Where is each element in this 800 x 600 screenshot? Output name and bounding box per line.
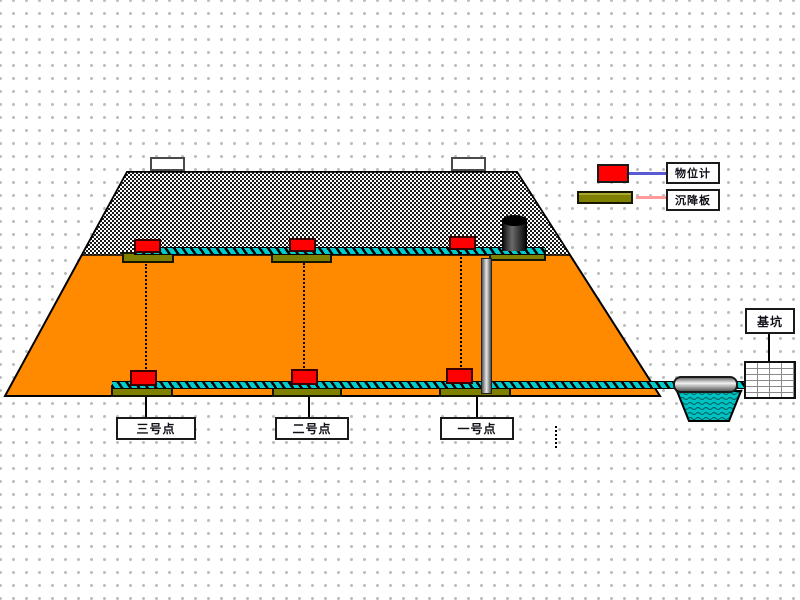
plumb-line-3 — [145, 264, 147, 369]
crest-marker-right — [451, 157, 486, 171]
label-stem-3 — [145, 397, 147, 418]
lower-rope — [112, 381, 746, 389]
hmi-canvas: 三号点 二号点 一号点 基坑 物位计 沉降板 — [0, 0, 800, 600]
level-gauge-lower-3 — [130, 370, 157, 386]
label-stem-2 — [308, 397, 310, 418]
level-gauge-swatch — [597, 164, 629, 183]
water-basin — [677, 391, 741, 421]
level-gauge-upper-2 — [289, 238, 316, 252]
level-gauge-upper-3 — [134, 239, 161, 253]
legend-label-level-gauge: 物位计 — [675, 165, 711, 181]
legend-label-box-level-gauge: 物位计 — [666, 162, 720, 184]
level-gauge-lower-1 — [446, 368, 473, 384]
roller-cylinder — [673, 376, 738, 393]
point-label-2: 二号点 — [292, 420, 331, 437]
pit-label-stem — [768, 334, 770, 361]
pit-label: 基坑 — [757, 313, 783, 330]
point-label-box-2: 二号点 — [275, 417, 349, 440]
legend-connector-blue — [629, 172, 666, 175]
legend-label-box-settlement-plate: 沉降板 — [666, 189, 720, 211]
point-label-3: 三号点 — [136, 420, 175, 437]
plumb-line-2 — [303, 263, 305, 368]
pit-label-box: 基坑 — [745, 308, 795, 334]
point-label-box-3: 三号点 — [116, 417, 196, 440]
plumb-line-stub — [555, 426, 557, 448]
riser-cylinder-cap — [502, 215, 527, 226]
label-stem-1 — [476, 397, 478, 418]
upper-rope — [134, 247, 545, 255]
level-gauge-upper-1 — [449, 236, 476, 250]
brick-wall — [744, 361, 796, 399]
point-label-1: 一号点 — [457, 420, 496, 437]
level-gauge-lower-2 — [291, 369, 318, 385]
crest-marker-left — [150, 157, 185, 171]
legend-connector-pink — [636, 196, 667, 199]
dam-scene — [0, 0, 800, 600]
point-label-box-1: 一号点 — [440, 417, 514, 440]
settlement-plate-swatch — [577, 191, 633, 204]
plumb-line-1 — [460, 252, 462, 367]
riser-pipe — [481, 258, 492, 394]
legend-label-settlement-plate: 沉降板 — [675, 192, 711, 208]
